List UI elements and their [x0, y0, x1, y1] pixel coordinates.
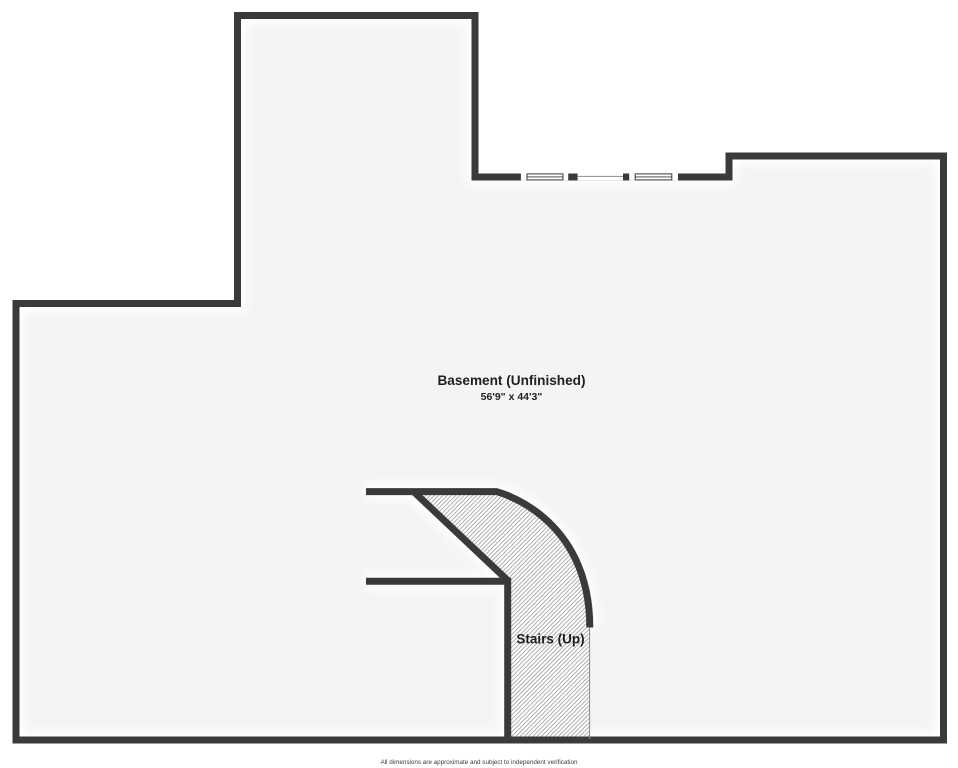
svg-text:All dimensions are approximate: All dimensions are approximate and subje… — [380, 759, 578, 766]
svg-text:56'9" x 44'3": 56'9" x 44'3" — [481, 391, 543, 403]
svg-text:Stairs (Up): Stairs (Up) — [516, 632, 584, 647]
svg-text:Basement (Unfinished): Basement (Unfinished) — [437, 373, 585, 388]
